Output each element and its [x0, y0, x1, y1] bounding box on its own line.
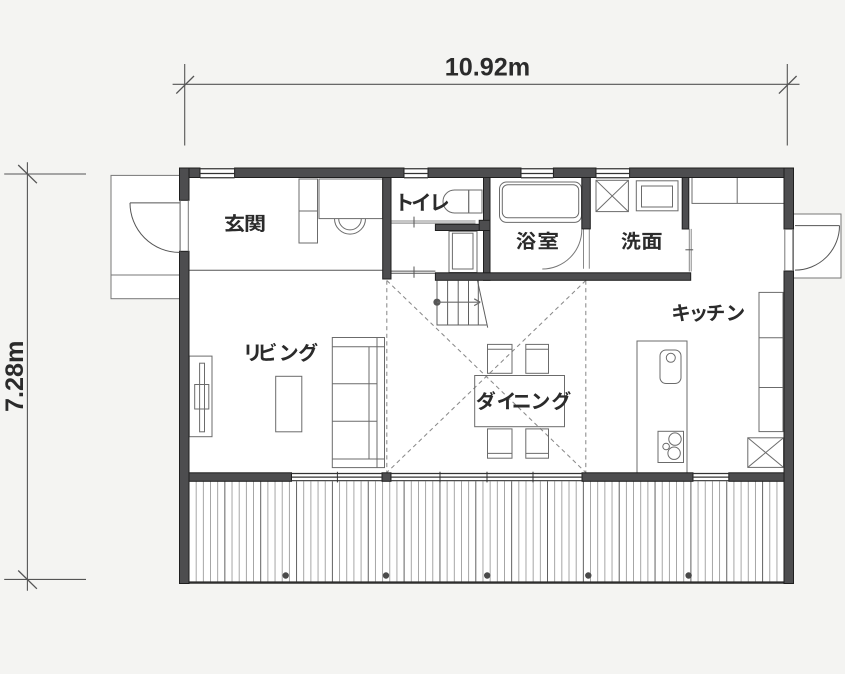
svg-text:10.92m: 10.92m — [445, 54, 530, 82]
svg-text:7.28m: 7.28m — [1, 341, 29, 412]
